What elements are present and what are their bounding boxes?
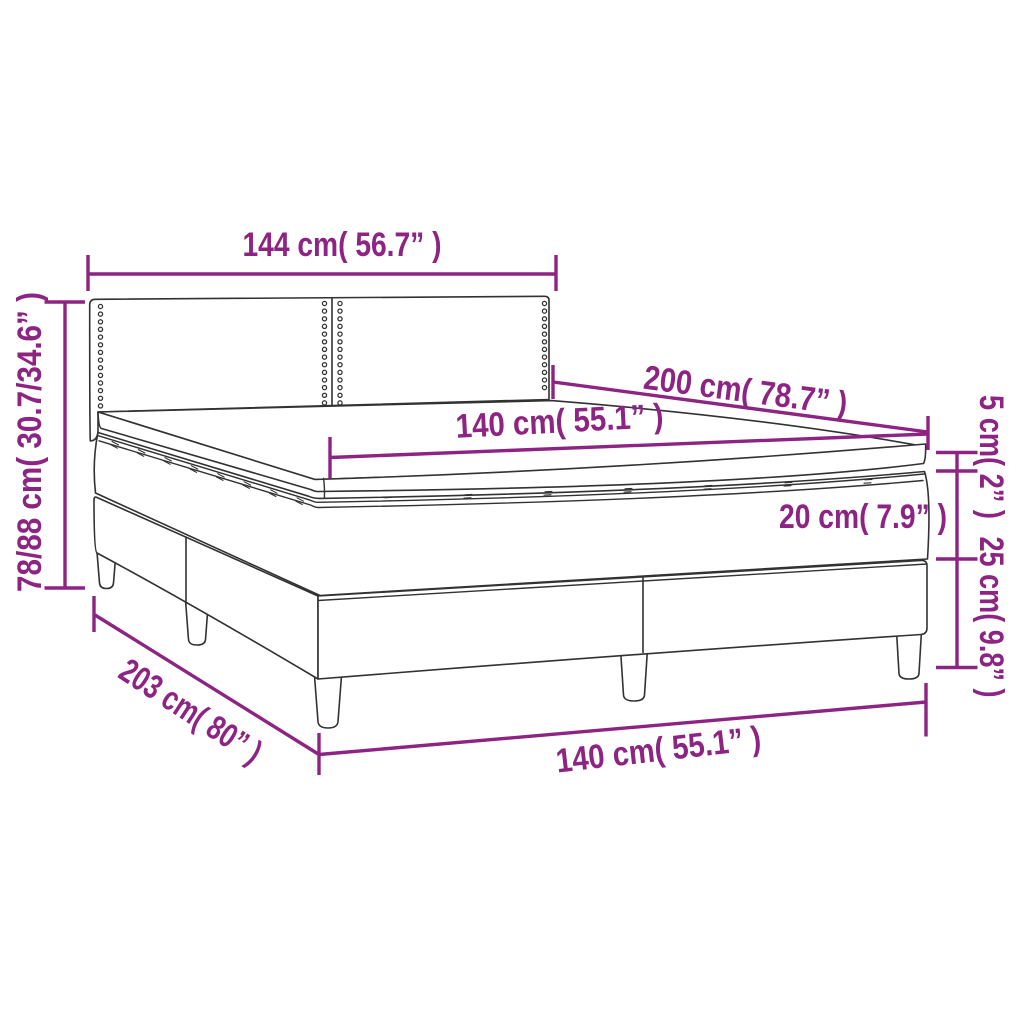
svg-text:20 cm( 7.9” ): 20 cm( 7.9” )	[779, 498, 947, 536]
svg-text:78/88 cm( 30.7/34.6” ): 78/88 cm( 30.7/34.6” )	[11, 292, 49, 592]
svg-text:144 cm( 56.7” ): 144 cm( 56.7” )	[243, 226, 442, 264]
svg-text:5 cm( 2” ): 5 cm( 2” )	[972, 395, 1010, 519]
svg-text:25 cm( 9.8” ): 25 cm( 9.8” )	[972, 537, 1010, 698]
